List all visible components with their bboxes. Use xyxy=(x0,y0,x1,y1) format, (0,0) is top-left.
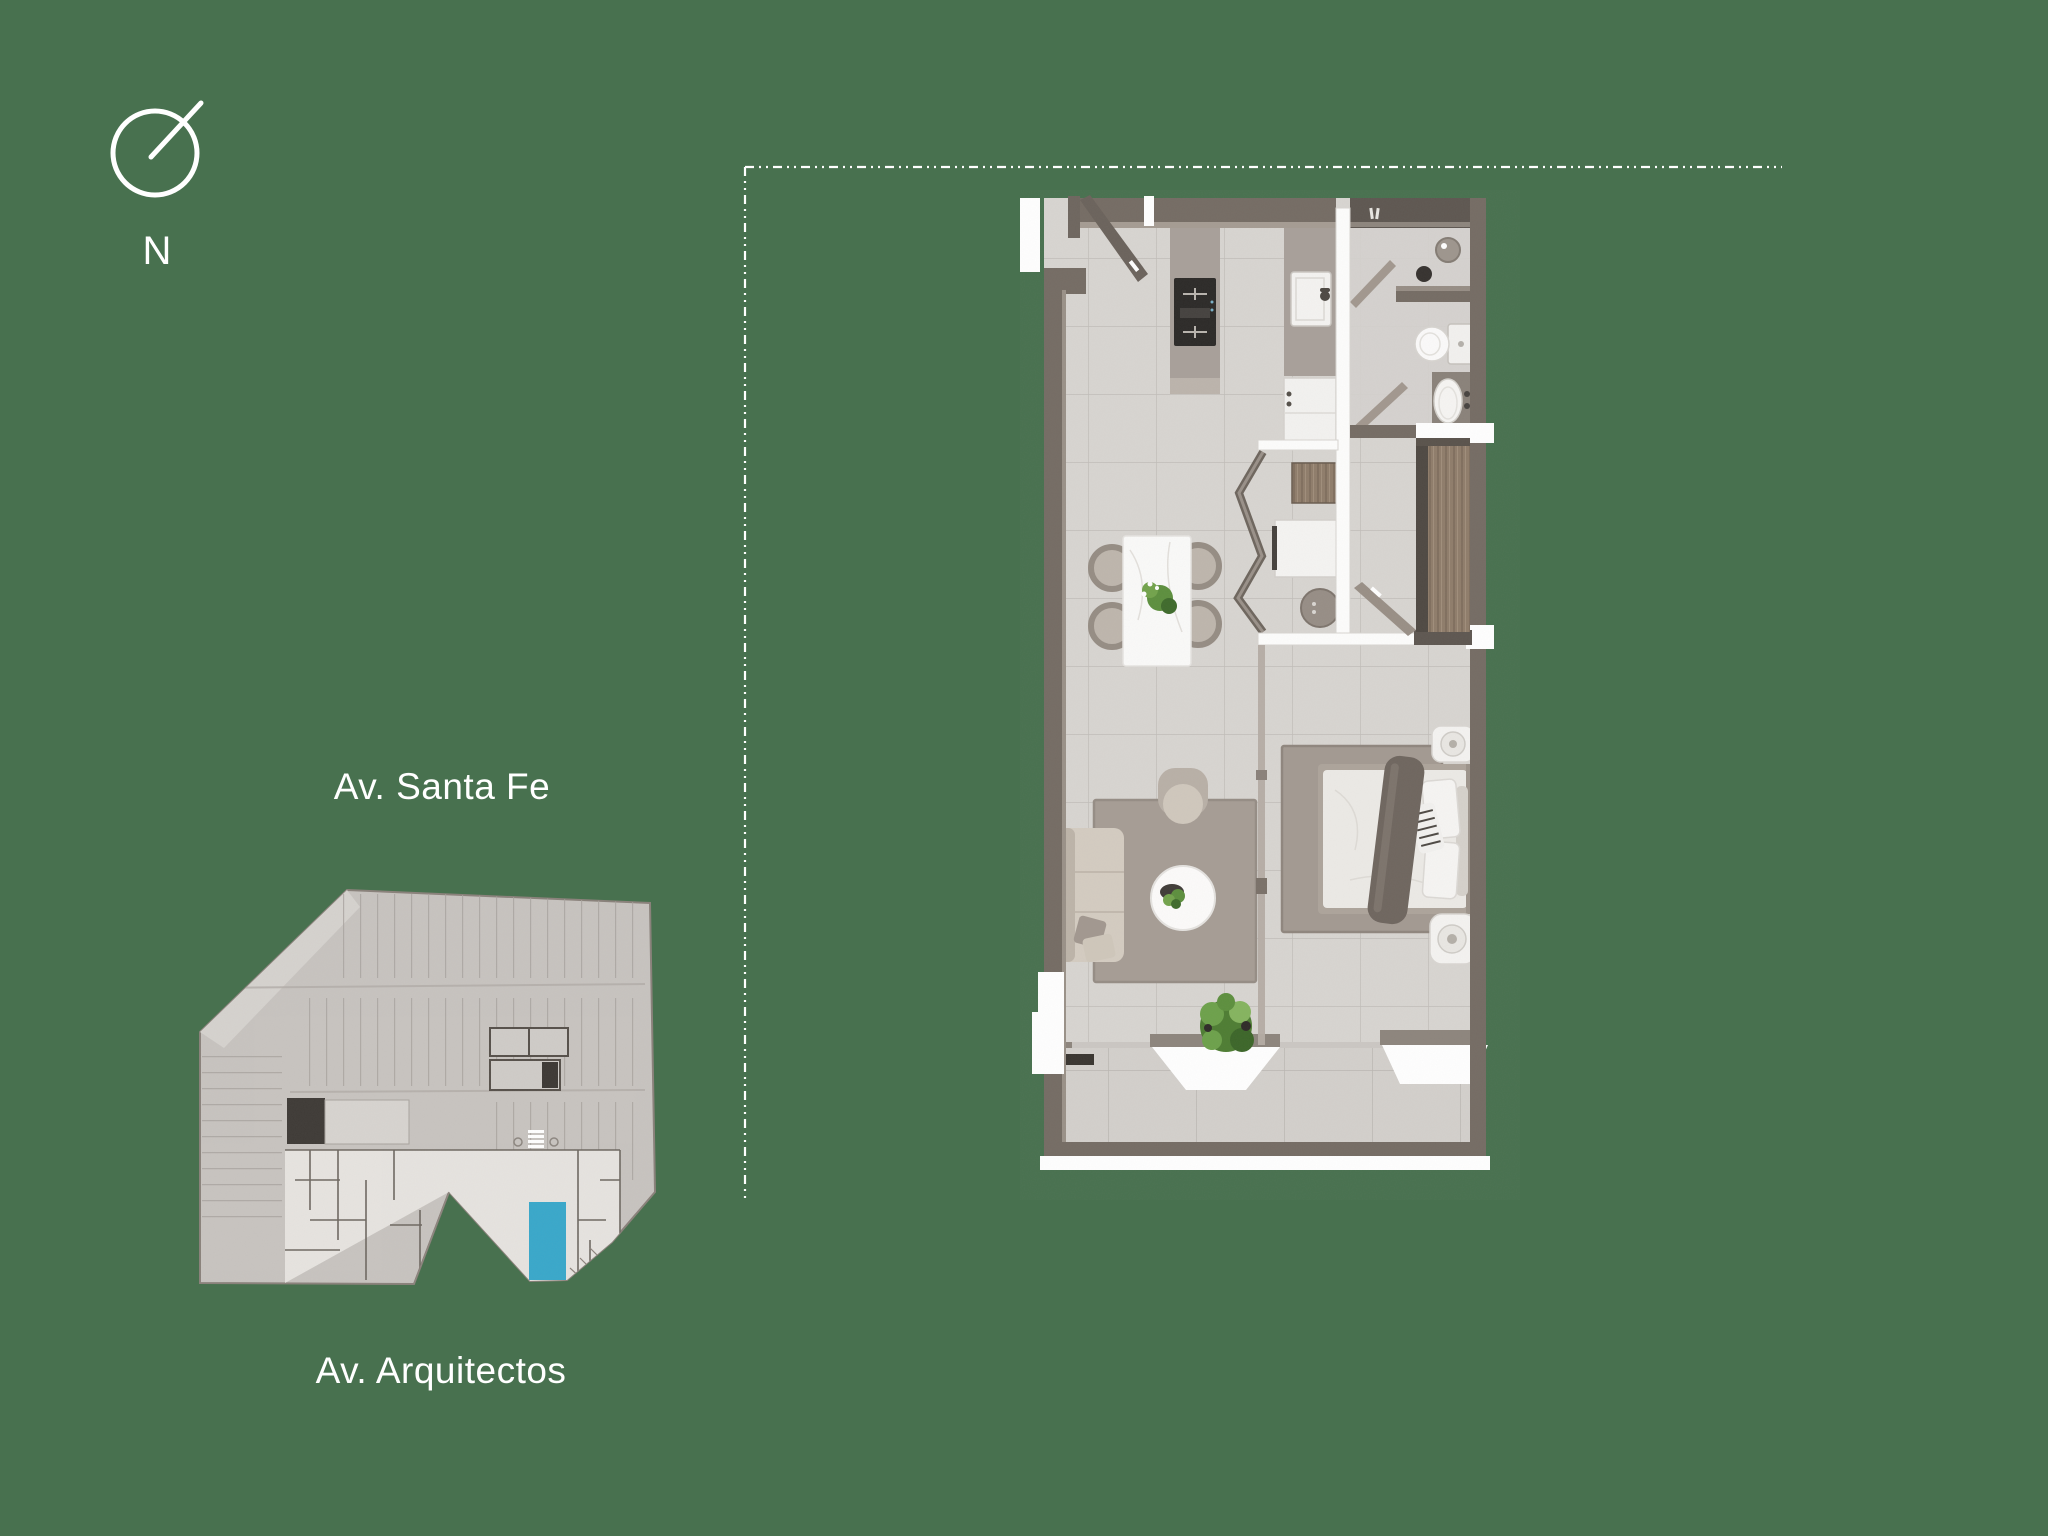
street-label-santa-fe: Av. Santa Fe xyxy=(272,766,612,808)
page-background: { "canvas": { "width": 2048, "height": 1… xyxy=(0,0,2048,1536)
compass-n-label: N xyxy=(93,229,221,274)
site-plan-texture xyxy=(190,880,670,1295)
compass: N xyxy=(93,83,221,274)
site-plan xyxy=(190,880,670,1295)
floor-plan-texture xyxy=(1020,190,1520,1200)
floor-plan xyxy=(1020,190,1520,1200)
compass-north-icon xyxy=(93,83,221,215)
exterior-stairs xyxy=(426,1260,436,1288)
street-label-arquitectos: Av. Arquitectos xyxy=(271,1350,611,1392)
